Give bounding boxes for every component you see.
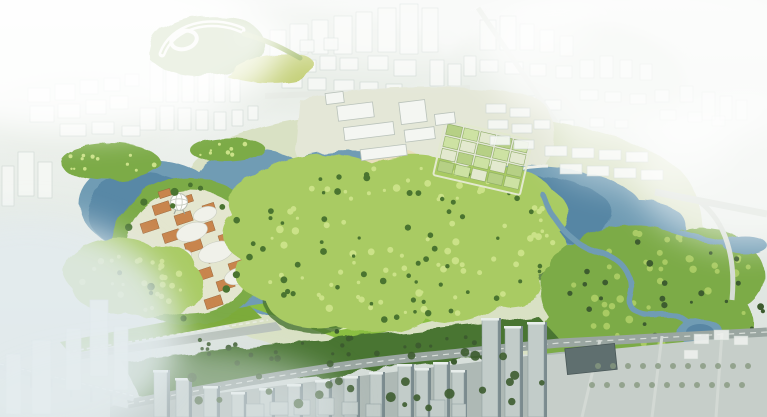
tree-dot [451,200,456,205]
tree-dot [346,352,350,356]
tree-dot [295,262,301,268]
street-tree [425,405,432,412]
tree-dot [429,345,432,348]
plaza-tree [700,363,706,369]
tree-dot [199,154,201,156]
tree-dot [422,300,426,304]
tree-dot [281,221,285,225]
rendering-canvas [0,0,767,417]
plaza-tree [634,382,640,388]
tree-dot [445,337,448,340]
tree-dot [223,285,231,293]
tree-dot [268,208,274,214]
plaza-tree [655,363,661,369]
tree-dot [309,186,315,192]
tree-dot [325,186,331,192]
tree-dot [368,305,373,310]
tree-dot [678,238,682,242]
tree-dot [413,310,417,314]
tree-dot [82,154,86,158]
tree-dot [416,261,421,266]
tree-dot [361,271,367,277]
tree-dot [336,174,341,179]
city-building [248,106,258,120]
street-tree [499,353,507,361]
plaza-tree [745,363,751,369]
plaza-tree [685,363,691,369]
tree-dot [243,142,248,147]
tower-face [528,324,544,417]
tree-dot [209,151,212,154]
tree-dot [179,288,182,291]
tree-dot [599,296,603,300]
tree-dot [609,303,615,309]
tree-dot [686,255,693,262]
campus-building [399,100,427,125]
tree-dot [230,153,234,157]
residential-slab [514,140,534,149]
tree-dot [368,248,375,255]
tree-dot [607,264,612,269]
tree-dot [407,190,413,196]
tree-dot [460,214,465,219]
tree-dot [662,280,668,286]
tree-dot [246,254,253,261]
tree-dot [357,281,361,285]
street-tree [347,385,354,392]
tree-dot [260,246,266,252]
tree-dot [456,182,463,189]
street-tree [539,380,545,386]
tree-dot [381,316,388,323]
tree-dot [447,209,452,214]
tree-dot [424,180,431,187]
tree-dot [329,283,333,287]
tree-dot [233,342,238,347]
tree-dot [198,338,202,342]
tree-dot [229,147,233,151]
low-building [366,404,381,417]
tree-dot [449,309,454,314]
tree-dot [513,261,519,267]
tree-dot [404,311,407,314]
tower-cap [451,370,465,373]
tree-dot [464,335,468,339]
tree-dot [158,267,161,270]
tree-dot [736,281,741,286]
tree-dot [363,175,370,182]
tree-dot [406,178,410,182]
tree-dot [545,234,549,238]
tree-dot [451,359,457,365]
tree-dot [659,267,664,272]
street-tree [508,398,515,405]
tree-dot [274,350,278,354]
tree-dot [301,276,304,279]
tree-dot [460,262,465,267]
tree-dot [226,150,230,154]
tree-dot [370,302,374,306]
tree-dot [70,168,72,170]
plaza-tree [589,382,595,388]
tree-dot [296,217,299,220]
tree-dot [383,189,386,192]
tree-dot [349,197,353,201]
tree-dot [661,302,667,308]
tower-cap [433,362,448,365]
tree-dot [269,216,273,220]
tree-dot [757,303,764,310]
plaza-tree [739,382,745,388]
tree-dot [586,306,592,312]
tree-dot [367,191,371,195]
plaza-building [714,330,729,340]
tree-dot [292,227,299,234]
tree-dot [633,230,639,236]
campus-building [325,91,344,104]
tree-dot [514,196,520,202]
tree-dot [415,280,418,283]
tree-dot [416,190,422,196]
tree-dot [531,232,537,238]
tree-dot [452,257,459,264]
tree-dot [603,323,610,330]
campus-building [434,112,455,125]
plaza-building [734,336,748,345]
low-building [430,400,445,417]
tree-dot [210,149,212,151]
tree-dot [602,302,608,308]
tree-dot [423,256,429,262]
residential-slab [490,136,510,145]
plaza-tree [664,382,670,388]
tree-dot [411,297,416,302]
plaza-tree [625,363,631,369]
tree-dot [440,197,444,201]
tree-dot [550,240,555,245]
tree-dot [169,283,175,289]
tree-dot [538,270,542,274]
tower-cap [527,322,545,325]
street-tree [386,392,396,402]
tree-dot [704,287,711,294]
tree-dot [125,224,132,231]
tree-dot [502,224,507,229]
residential-slab [486,104,506,113]
tree-dot [698,290,704,296]
street-tree [444,389,454,399]
tree-dot [689,266,696,273]
tree-dot [403,345,406,348]
street-tree [413,394,420,401]
tree-dot [538,264,543,269]
tree-dot [359,297,365,303]
tree-dot [664,237,670,243]
tree-dot [251,241,256,246]
tower-cap [397,364,412,367]
tree-dot [344,190,348,194]
tree-dot [529,209,534,214]
tree-dot [584,269,590,275]
tree-dot [335,285,340,290]
plaza-tree [679,382,685,388]
tree-dot [616,295,624,303]
tree-dot [352,254,355,257]
tree-dot [496,237,499,240]
tree-dot [539,218,543,222]
tree-dot [322,191,325,194]
tree-dot [219,204,225,210]
tree-dot [646,260,653,267]
tree-dot [233,271,240,278]
tree-dot [334,188,341,195]
plaza-tree [709,382,715,388]
tree-dot [420,167,423,170]
tower-face [482,320,498,417]
street-tree [461,348,470,357]
tree-dot [188,183,193,188]
street-tree [327,360,334,367]
street-tree [401,377,410,386]
tree-dot [81,157,84,160]
tree-dot [456,197,459,200]
tree-dot [477,270,482,275]
tree-dot [541,229,545,233]
tree-dot [405,225,411,231]
tree-dot [383,268,388,273]
tree-dot [646,305,650,309]
tree-dot [428,232,434,238]
tree-dot [746,265,751,270]
plaza-tree [604,382,610,388]
tree-dot [320,248,327,255]
tree-dot [340,343,344,347]
tree-dot [180,315,186,321]
low-building [452,404,466,417]
tree-dot [466,290,470,294]
plaza-tree [670,363,676,369]
tree-dot [176,271,182,277]
tree-dot [324,222,330,228]
tree-dot [571,282,576,287]
tree-dot [461,268,467,274]
tree-dot [285,289,290,294]
tree-dot [334,329,339,334]
street-tree [402,402,407,407]
plaza-tree [724,382,730,388]
city-building [232,110,243,126]
tree-dot [276,226,284,234]
tree-dot [374,351,380,357]
plaza-tree [649,382,655,388]
tree-dot [352,261,356,265]
city-building [308,78,326,90]
tree-dot [518,279,522,283]
tree-dot [614,273,620,279]
tree-dot [271,237,274,240]
tree-dot [455,310,461,316]
tree-dot [126,163,129,166]
tree-dot [358,236,361,239]
tower-cap [369,372,383,375]
tree-dot [393,184,401,192]
tree-dot [326,305,333,312]
tree-dot [660,296,666,302]
tree-dot [400,254,404,258]
plaza-tree [595,363,601,369]
residential-slab [488,120,508,129]
tree-dot [207,342,211,346]
residential-slab [512,124,532,133]
tree-dot [657,250,663,256]
aerial-rendering [0,0,767,417]
tree-dot [712,262,718,268]
tree-dot [406,273,411,278]
tree-dot [140,199,147,206]
tree-dot [625,316,633,324]
tree-dot [301,342,304,345]
tree-dot [742,311,746,315]
tree-dot [452,238,459,245]
tree-dot [567,291,572,296]
tower-cap [415,368,429,371]
tree-dot [494,295,500,301]
street-tree [408,352,416,360]
tree-dot [643,322,647,326]
tree-dot [378,300,383,305]
tree-dot [518,250,525,257]
tree-dot [218,143,221,146]
tree-dot [439,283,443,287]
tree-dot [73,168,75,170]
tower-cap [481,318,499,321]
street-tree [470,351,480,361]
tree-dot [761,309,765,313]
tree-dot [371,166,376,171]
city-building [18,152,34,196]
tree-dot [415,343,421,349]
tower-cap [504,326,521,329]
tree-dot [426,237,430,241]
street-tree [479,387,486,394]
tree-dot [472,340,477,345]
tree-dot [690,301,693,304]
city-building [2,166,14,206]
plaza-slab-building [565,343,617,374]
tree-dot [603,310,610,317]
tree-dot [449,221,455,227]
tree-dot [402,265,408,271]
tree-dot [96,157,100,161]
tree-dot [583,282,588,287]
tree-dot [338,270,343,275]
tree-dot [281,276,288,283]
city-building [38,162,52,198]
tree-dot [170,203,175,208]
street-tree [510,371,519,380]
tree-dot [291,206,297,212]
tree-dot [319,177,323,181]
tree-dot [331,352,334,355]
tree-dot [320,240,324,244]
tree-dot [662,259,668,265]
tree-dot [83,167,87,171]
tree-dot [393,273,397,277]
tree-dot [444,248,451,255]
tree-dot [321,216,327,222]
tree-dot [715,269,720,274]
tree-dot [268,280,272,284]
tree-dot [135,169,138,172]
tree-dot [152,163,157,168]
tree-dot [387,247,393,253]
plaza-tree [640,363,646,369]
tree-dot [453,295,457,299]
plaza-tree [610,363,616,369]
city-building [214,112,226,130]
plaza-tree [730,363,736,369]
tree-dot [734,256,739,261]
tree-dot [602,280,608,286]
tree-dot [425,310,431,316]
tree-dot [539,206,545,212]
street-tree [335,377,343,385]
tree-dot [198,186,203,191]
tree-dot [349,336,354,341]
tree-dot [635,239,641,245]
tree-dot [725,300,728,303]
tree-dot [380,278,387,285]
plaza-building [684,350,698,359]
tree-dot [500,291,506,297]
tree-dot [432,246,438,252]
tree-dot [319,295,324,300]
plaza-tree [694,382,700,388]
tree-dot [445,264,449,268]
tower-cap [343,376,358,379]
tree-dot [436,263,440,267]
plaza-tree [619,382,625,388]
tree-dot [233,217,240,224]
tree-dot [709,251,713,255]
tree-dot [591,323,597,329]
tree-dot [394,314,400,320]
plaza-building [694,334,709,344]
tree-dot [291,291,296,296]
tree-dot [129,154,132,157]
plaza-tree [715,363,721,369]
tower-face [398,366,411,417]
tree-dot [591,295,598,302]
tree-dot [171,188,179,196]
tree-dot [415,289,422,296]
tree-dot [91,155,95,159]
tree-dot [150,260,154,264]
tree-dot [341,220,346,225]
tree-dot [69,154,73,158]
tree-dot [491,256,496,261]
tree-dot [280,242,287,249]
